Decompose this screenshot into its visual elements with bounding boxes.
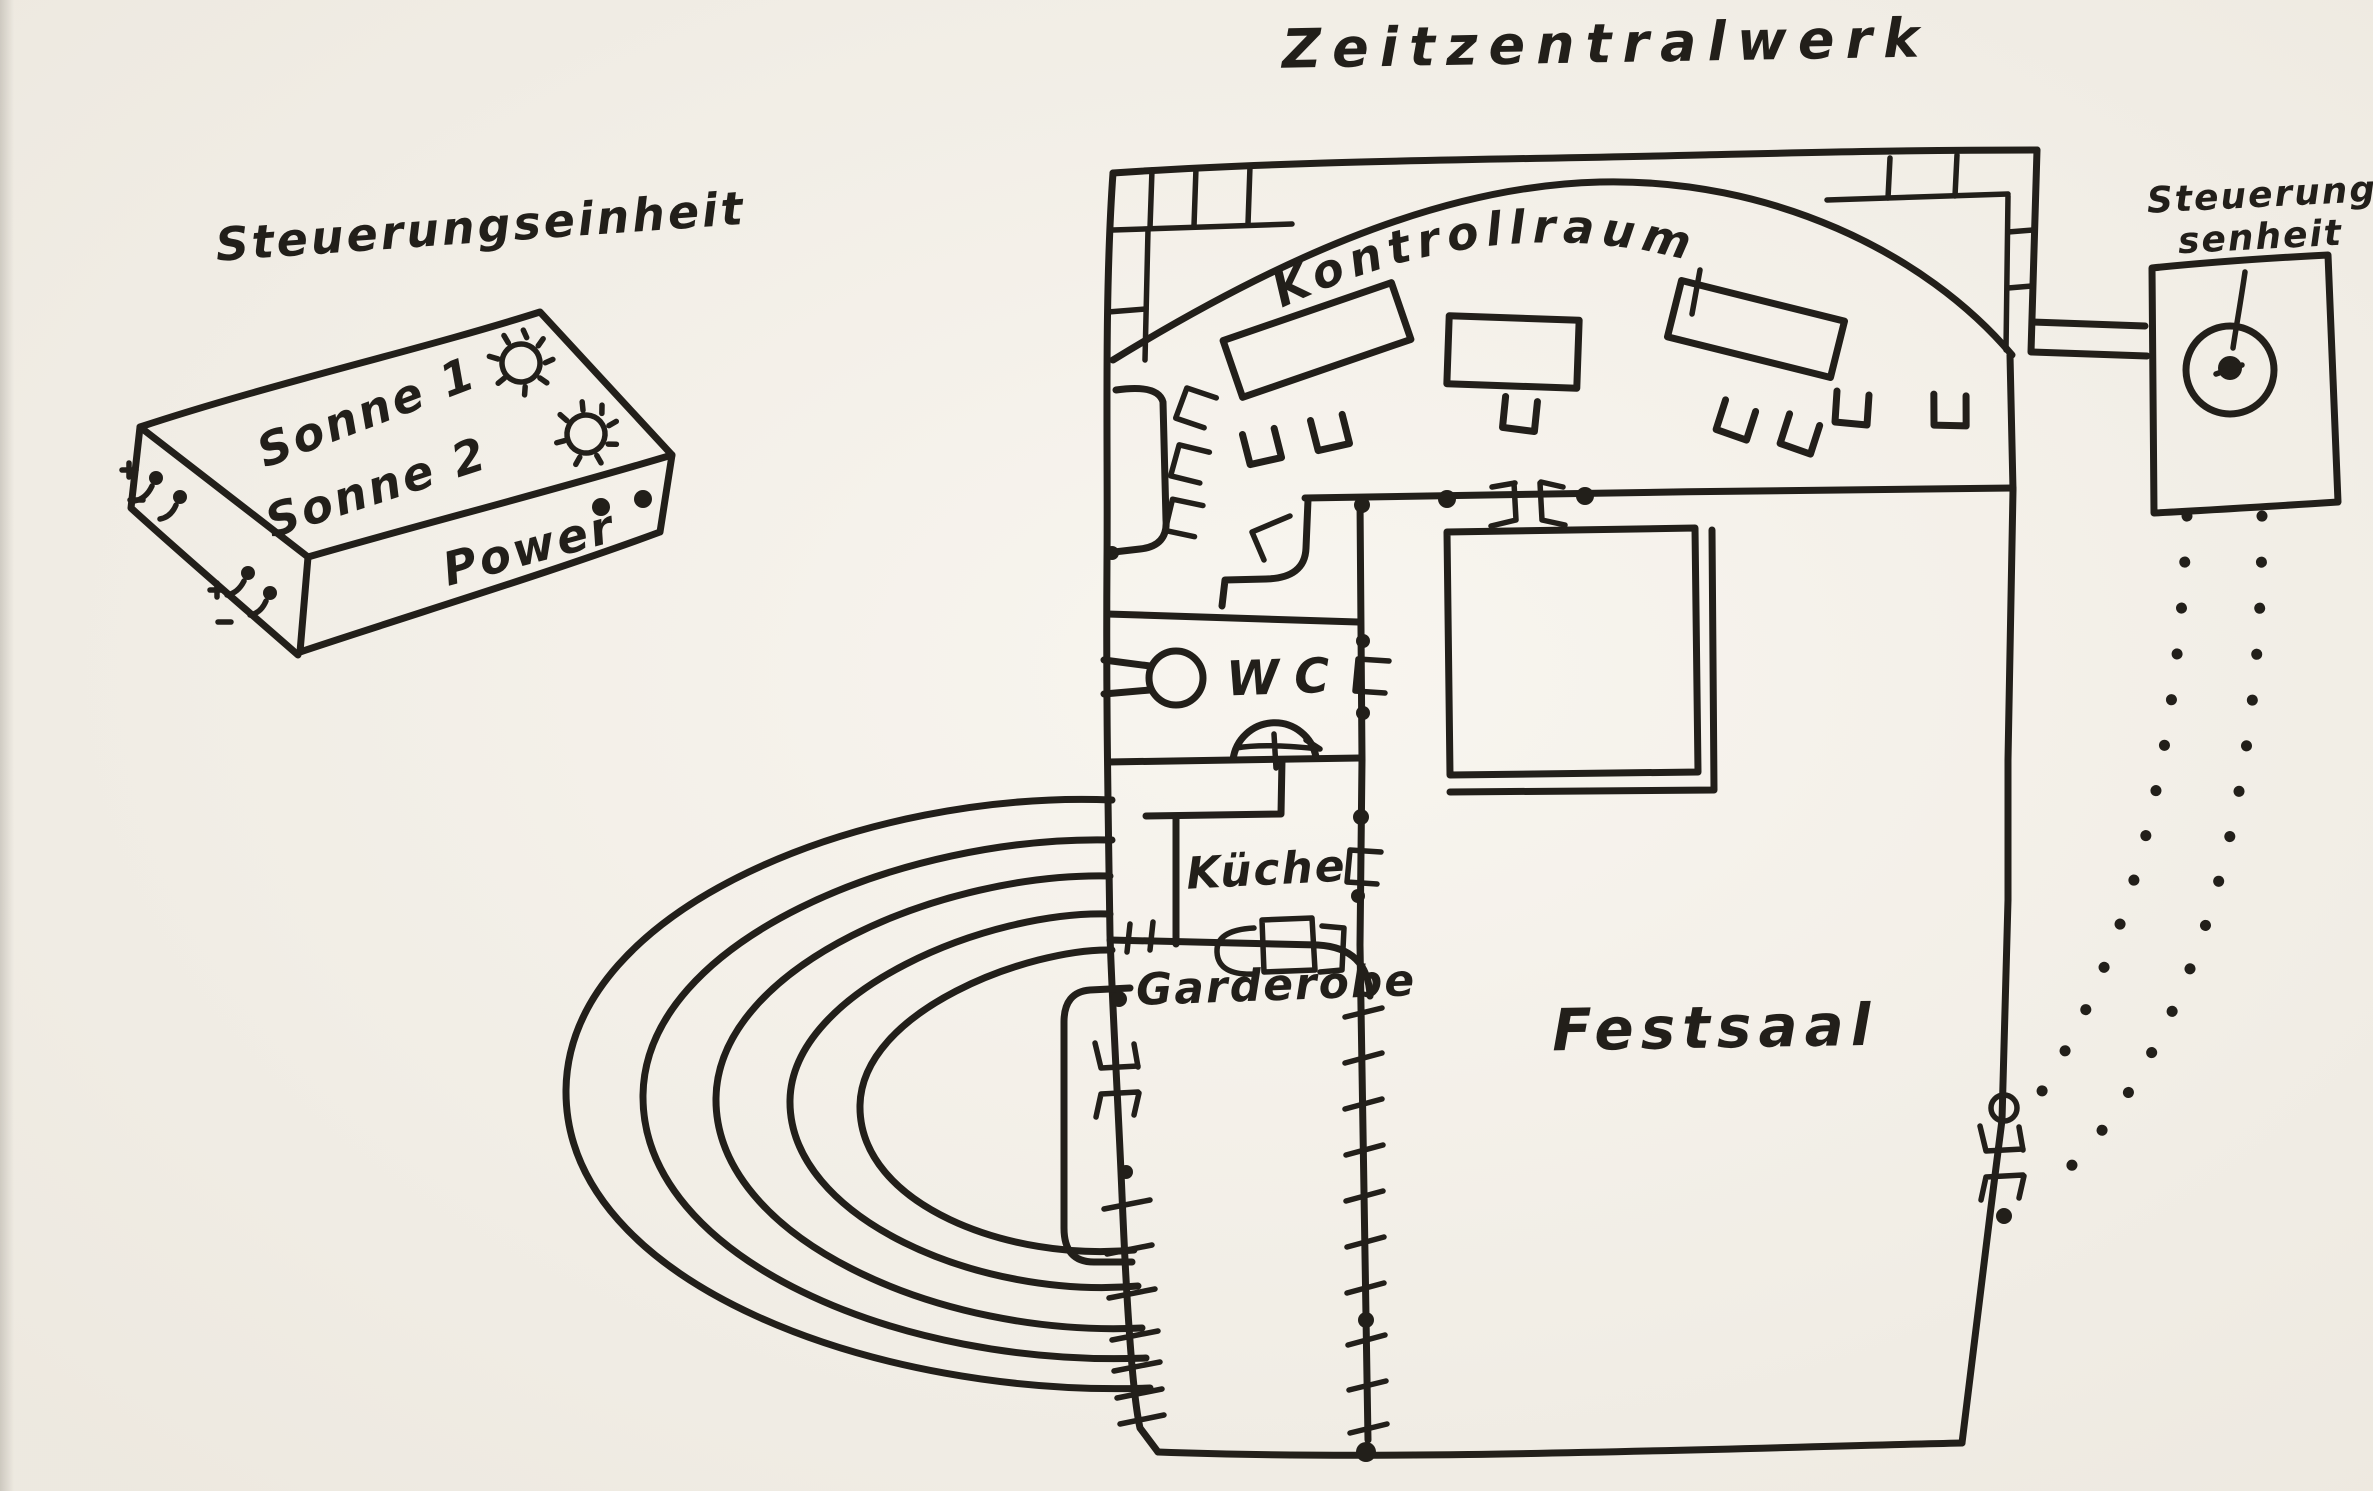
festsaal-top-wall bbox=[1305, 482, 2013, 526]
sun-2-icon bbox=[549, 395, 625, 473]
wc-room: WC bbox=[1104, 614, 1389, 768]
room-label-festsaal: Festsaal bbox=[1552, 991, 1879, 1065]
room-label-kontrollraum: Kontrollraum bbox=[1264, 199, 1703, 318]
connection-corridor bbox=[2032, 322, 2147, 356]
page-title: Zeitzentralwerk bbox=[1279, 7, 1930, 81]
device-box bbox=[2152, 255, 2338, 513]
sketch-page: Zeitzentralwerk Steuerungseinheit Sonne … bbox=[0, 0, 2373, 1491]
room-label-kueche: Küche bbox=[1185, 840, 1348, 899]
toilet-icon bbox=[1149, 651, 1203, 705]
concentric-arcs bbox=[566, 799, 1150, 1388]
room-label-wc: WC bbox=[1225, 647, 1345, 707]
left-control-unit: Steuerungseinheit Sonne 1 Sonne 2 Power bbox=[122, 181, 747, 655]
control-room-chairs bbox=[1241, 391, 1969, 467]
outer-walls bbox=[1107, 150, 2037, 1455]
alcove-wall bbox=[1222, 500, 1308, 606]
sketch-canvas: Zeitzentralwerk Steuerungseinheit Sonne … bbox=[0, 0, 2373, 1491]
power-led-dots bbox=[592, 490, 652, 516]
wall-booth bbox=[1114, 387, 1217, 552]
floor-plan: Kontrollraum bbox=[566, 150, 2037, 1462]
wall-bricks-top-left bbox=[1108, 166, 1292, 360]
room-label-garderobe: Garderobe bbox=[1135, 955, 1417, 1016]
dial-icon bbox=[2186, 272, 2274, 414]
side-connector-dots bbox=[122, 463, 277, 622]
wall-bricks-top-right bbox=[1827, 155, 2033, 350]
inner-room bbox=[1447, 528, 1714, 792]
left-control-unit-label: Steuerungseinheit bbox=[214, 181, 748, 272]
right-control-unit: Steuerung- senheit bbox=[2018, 168, 2373, 1192]
dotted-cables bbox=[2018, 516, 2262, 1192]
festsaal: Festsaal bbox=[1447, 528, 2024, 1224]
sun-1-icon bbox=[486, 326, 558, 400]
